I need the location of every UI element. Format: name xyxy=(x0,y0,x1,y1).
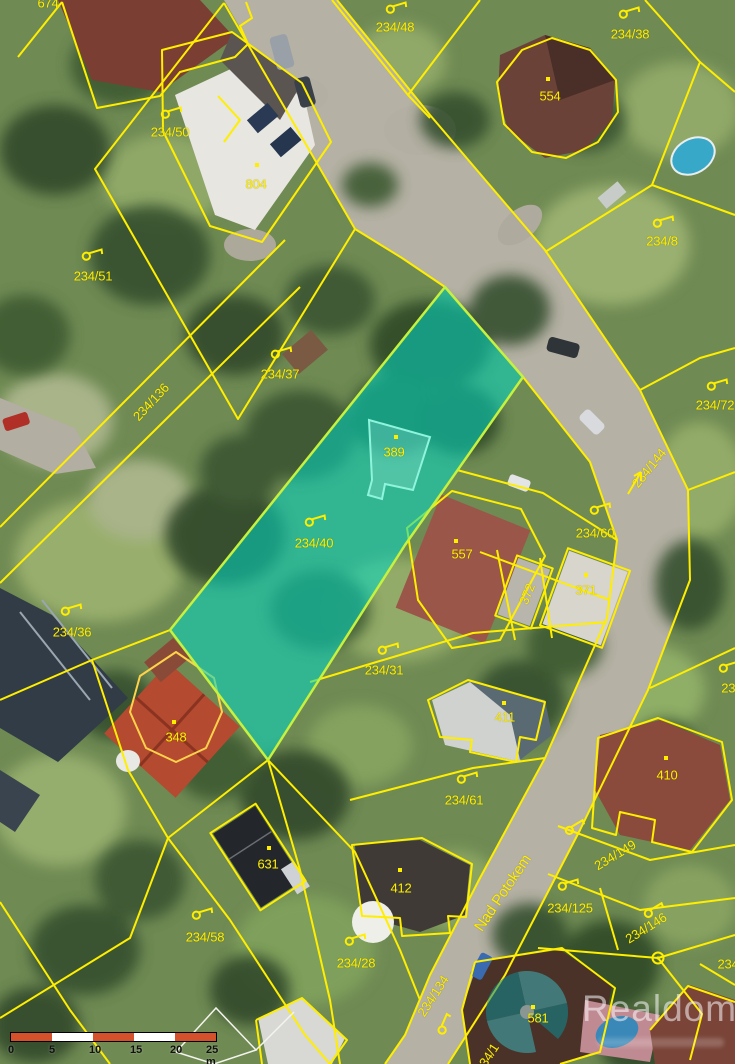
scale-bar-segment xyxy=(93,1033,134,1041)
building-centroid-dot xyxy=(546,77,550,81)
parcel-number-label: 234/61 xyxy=(445,794,484,807)
building-centroid-dot xyxy=(398,868,402,872)
scale-bar-segment xyxy=(134,1033,175,1041)
parcel-number-label: 234/36 xyxy=(53,626,92,639)
scale-bar-tick-label: 20 xyxy=(170,1044,182,1056)
watermark-tagline xyxy=(598,1038,724,1047)
watermark-brand-text: Realdomus xyxy=(582,988,735,1030)
building-number-label: 554 xyxy=(539,90,560,103)
parcel-number-label: 234/72 xyxy=(696,399,735,412)
building-number-label: 389 xyxy=(383,446,404,459)
scale-bar-tick-label: 15 xyxy=(130,1044,142,1056)
scale-bar-tick-label: 10 xyxy=(89,1044,101,1056)
parcel-number-label: 234/1 xyxy=(473,1041,501,1064)
building-number-label: 348 xyxy=(165,731,186,744)
scale-bar-segment xyxy=(11,1033,52,1041)
building-number-label: 412 xyxy=(390,882,411,895)
building-centroid-dot xyxy=(172,720,176,724)
parcel-number-label: 234/8 xyxy=(646,235,678,248)
building-centroid-dot xyxy=(454,539,458,543)
scale-bar-segment xyxy=(52,1033,93,1041)
building-centroid-dot xyxy=(267,846,271,850)
parcel-labels-layer: 674234/48234/38554234/50804234/8234/5123… xyxy=(0,0,735,1064)
parcel-number-label: 234/125 xyxy=(547,902,593,915)
parcel-number-label: 234/38 xyxy=(611,28,650,41)
scale-bar-tick-label: 0 xyxy=(8,1044,14,1056)
building-number-label: 674 xyxy=(37,0,58,10)
building-number-label: 411 xyxy=(495,711,515,724)
parcel-number-label: 234/37 xyxy=(261,368,300,381)
parcel-number-label: 234/48 xyxy=(376,21,415,34)
building-number-label: 631 xyxy=(257,858,278,871)
parcel-number-label: 234/31 xyxy=(365,664,404,677)
building-number-label: 804 xyxy=(245,178,266,191)
parcel-number-label: 234/60 xyxy=(576,527,615,540)
building-centroid-dot xyxy=(502,701,506,705)
building-centroid-dot xyxy=(531,1005,535,1009)
parcel-number-label: 234/58 xyxy=(186,931,225,944)
scale-bar-tick-label: 5 xyxy=(49,1044,55,1056)
parcel-number-label: 234 xyxy=(717,958,735,971)
parcel-number-label: 234/1 xyxy=(721,682,735,695)
building-number-label: 371 xyxy=(575,584,596,597)
building-centroid-dot xyxy=(255,163,259,167)
parcel-number-label: 234/149 xyxy=(592,838,638,873)
building-centroid-dot xyxy=(394,435,398,439)
scale-bar-segments xyxy=(10,1032,217,1042)
parcel-number-label: 234/50 xyxy=(151,126,190,139)
scale-bar-segment xyxy=(175,1033,216,1041)
building-number-label: 581 xyxy=(527,1012,548,1025)
parcel-number-label: 234/40 xyxy=(295,537,334,550)
parcel-number-label: 234/136 xyxy=(131,381,172,423)
cadastral-map-canvas[interactable]: 674234/48234/38554234/50804234/8234/5123… xyxy=(0,0,735,1064)
street-label: Nad Potokem xyxy=(472,852,534,934)
building-number-label: 410 xyxy=(656,769,677,782)
building-number-label: 372 xyxy=(517,582,537,606)
building-number-label: 557 xyxy=(451,548,472,561)
building-centroid-dot xyxy=(664,756,668,760)
parcel-number-label: 234/28 xyxy=(337,957,376,970)
scale-bar: 0510152025 m xyxy=(8,1030,223,1056)
parcel-number-label: 234/51 xyxy=(74,270,113,283)
building-centroid-dot xyxy=(584,573,588,577)
scale-bar-tick-label: 25 m xyxy=(206,1044,223,1064)
